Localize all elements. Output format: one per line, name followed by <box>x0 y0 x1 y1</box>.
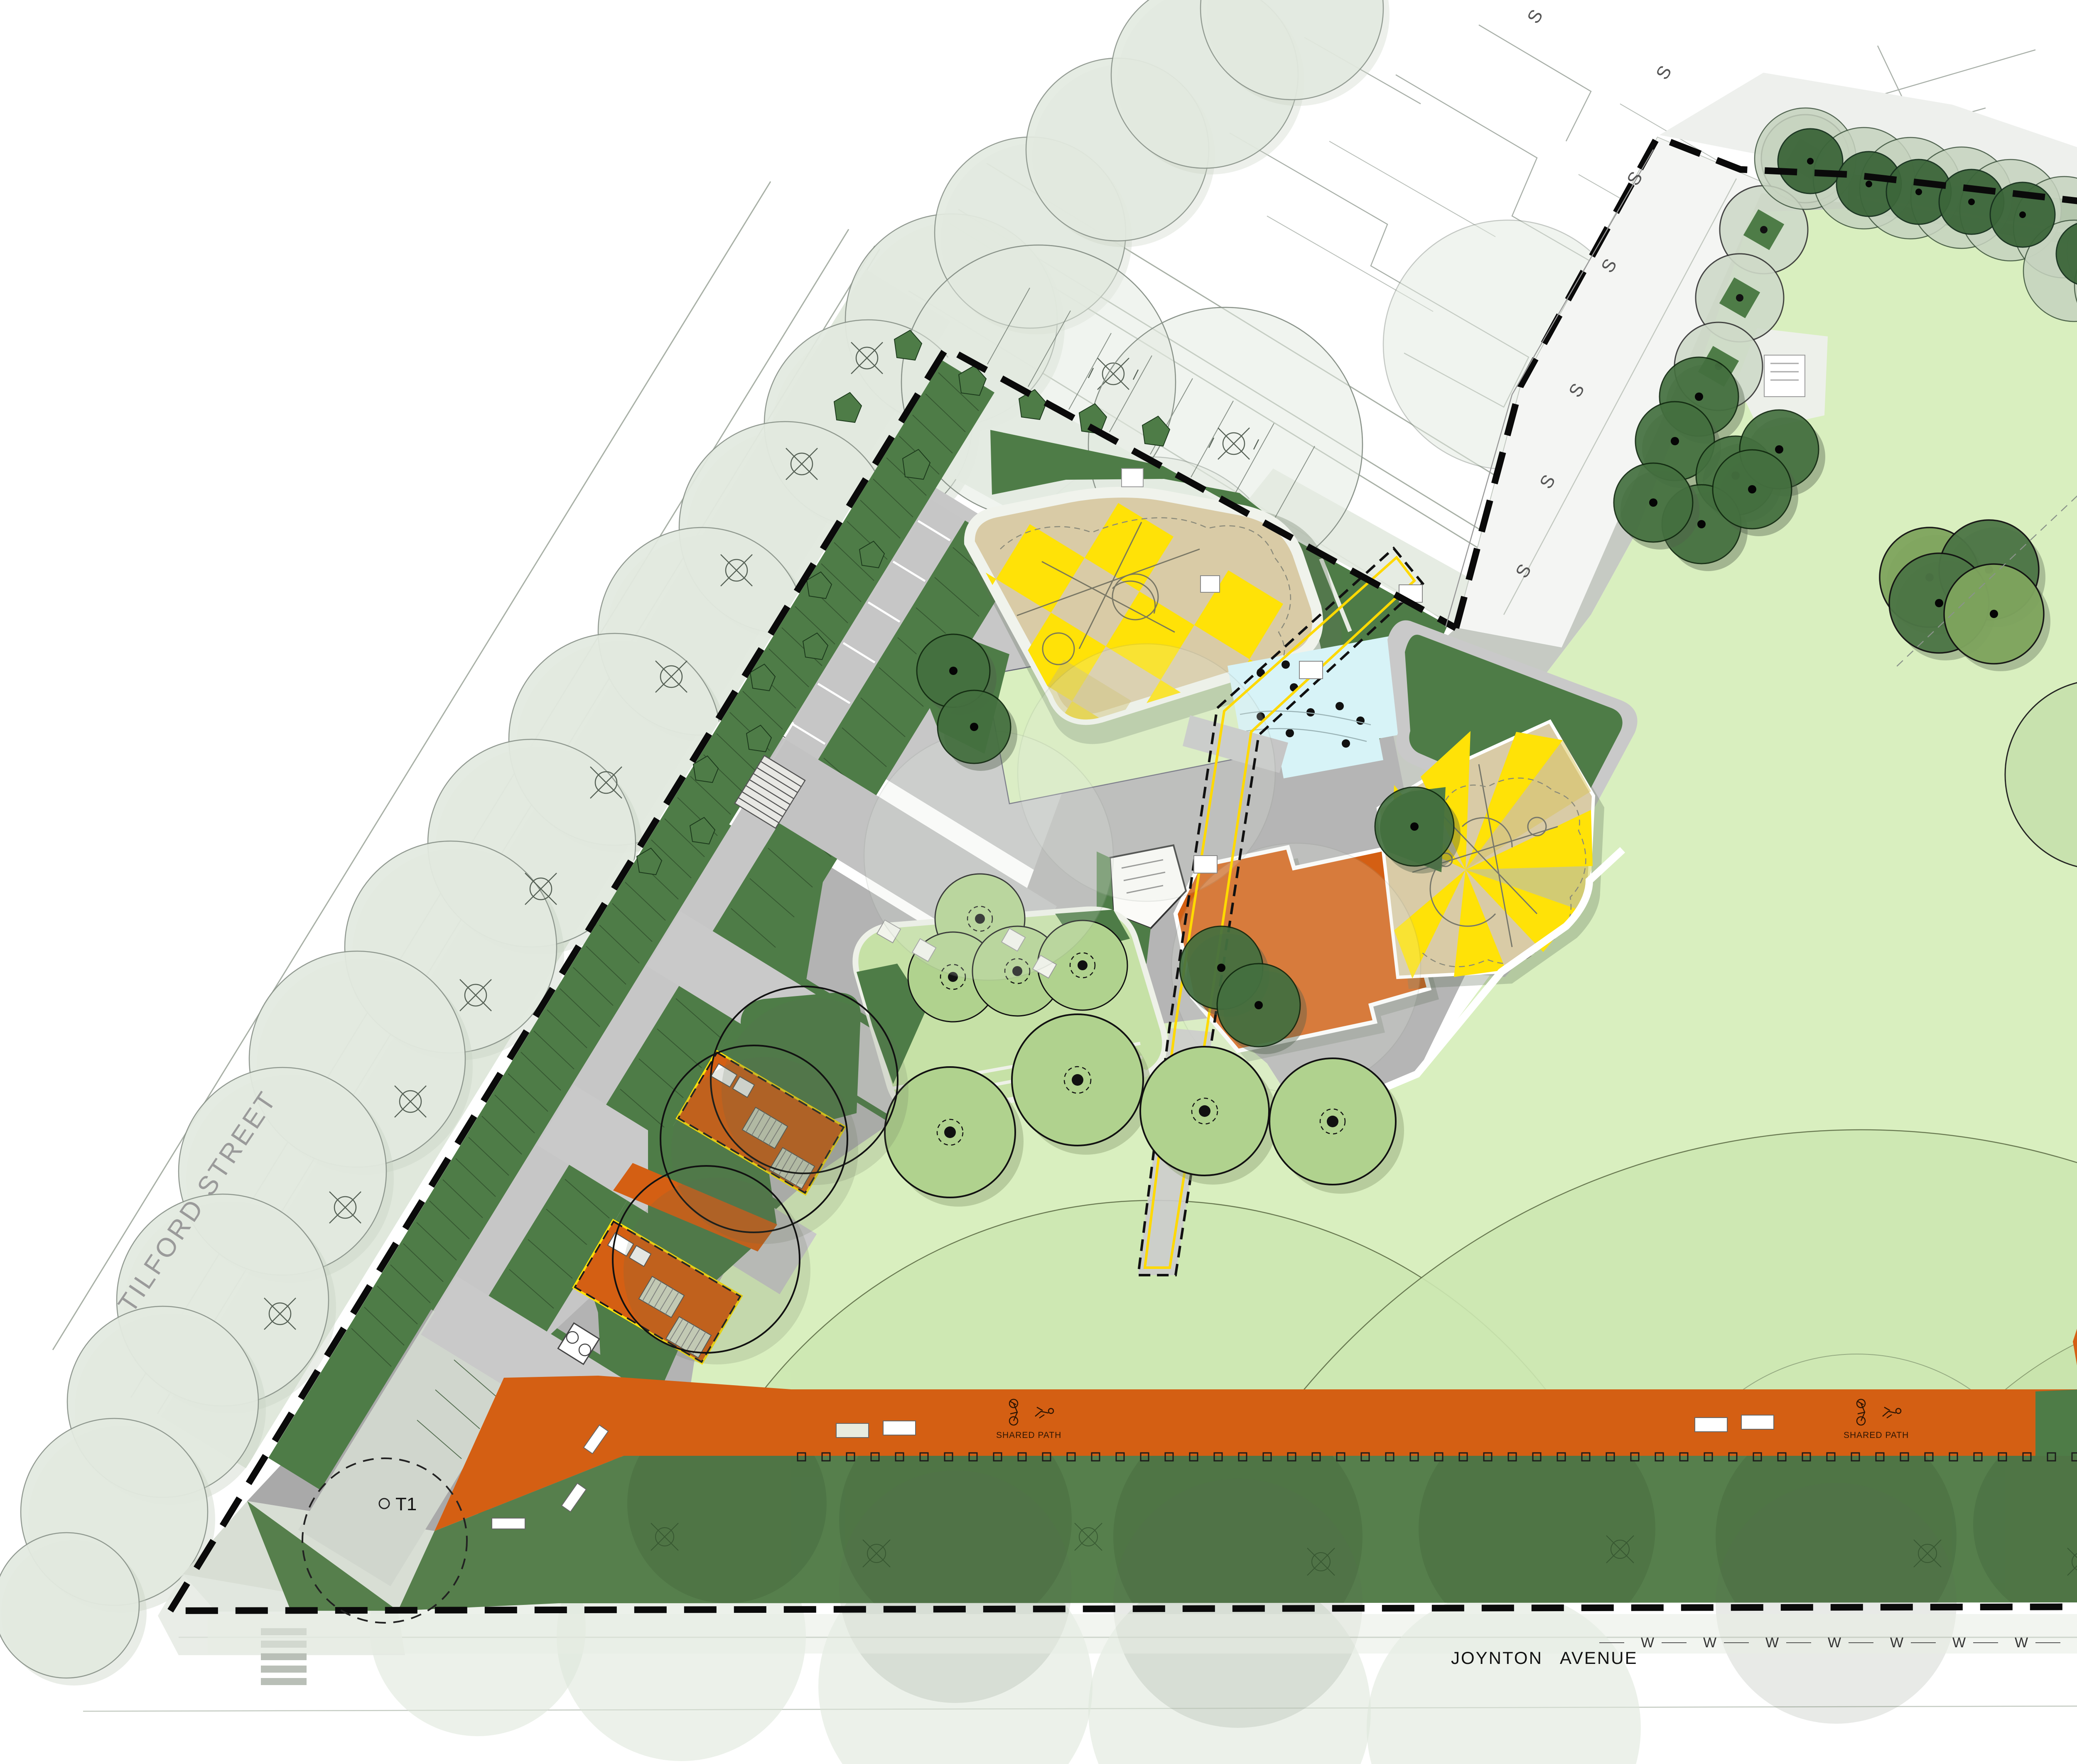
svg-text:W: W <box>1703 1635 1716 1651</box>
svg-text:T1: T1 <box>395 1494 417 1514</box>
svg-text:W: W <box>1952 1635 1966 1651</box>
svg-text:W: W <box>1890 1635 1903 1651</box>
svg-text:SHARED PATH: SHARED PATH <box>996 1430 1061 1440</box>
svg-text:SHARED PATH: SHARED PATH <box>1844 1430 1909 1440</box>
svg-text:W: W <box>2015 1635 2028 1651</box>
svg-text:JOYNTON: JOYNTON <box>1451 1648 1543 1668</box>
svg-text:W: W <box>1828 1635 1841 1651</box>
svg-text:W: W <box>1641 1635 1654 1651</box>
svg-text:W: W <box>1765 1635 1779 1651</box>
svg-text:AVENUE: AVENUE <box>1560 1648 1638 1668</box>
